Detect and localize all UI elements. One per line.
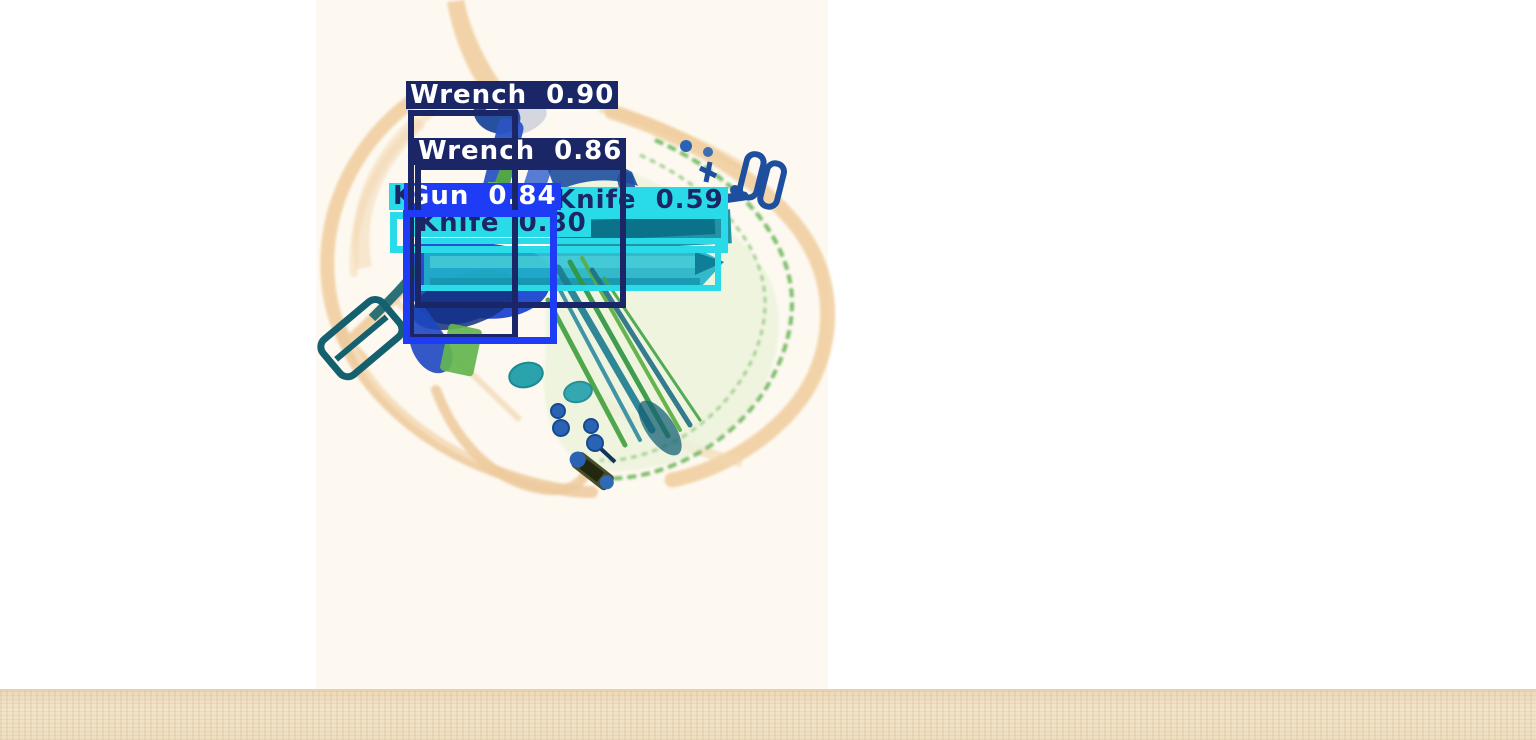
xray-scan-viewport: Knife 0.59 K Gun 0.84 Knife 0.80 Wrench … bbox=[0, 0, 1536, 738]
label-wrench-090: Wrench 0.90 bbox=[406, 81, 618, 109]
xray-bag-image bbox=[0, 0, 1536, 738]
conveyor-belt-strip bbox=[0, 689, 1536, 740]
bbox-gun-084 bbox=[403, 210, 557, 344]
